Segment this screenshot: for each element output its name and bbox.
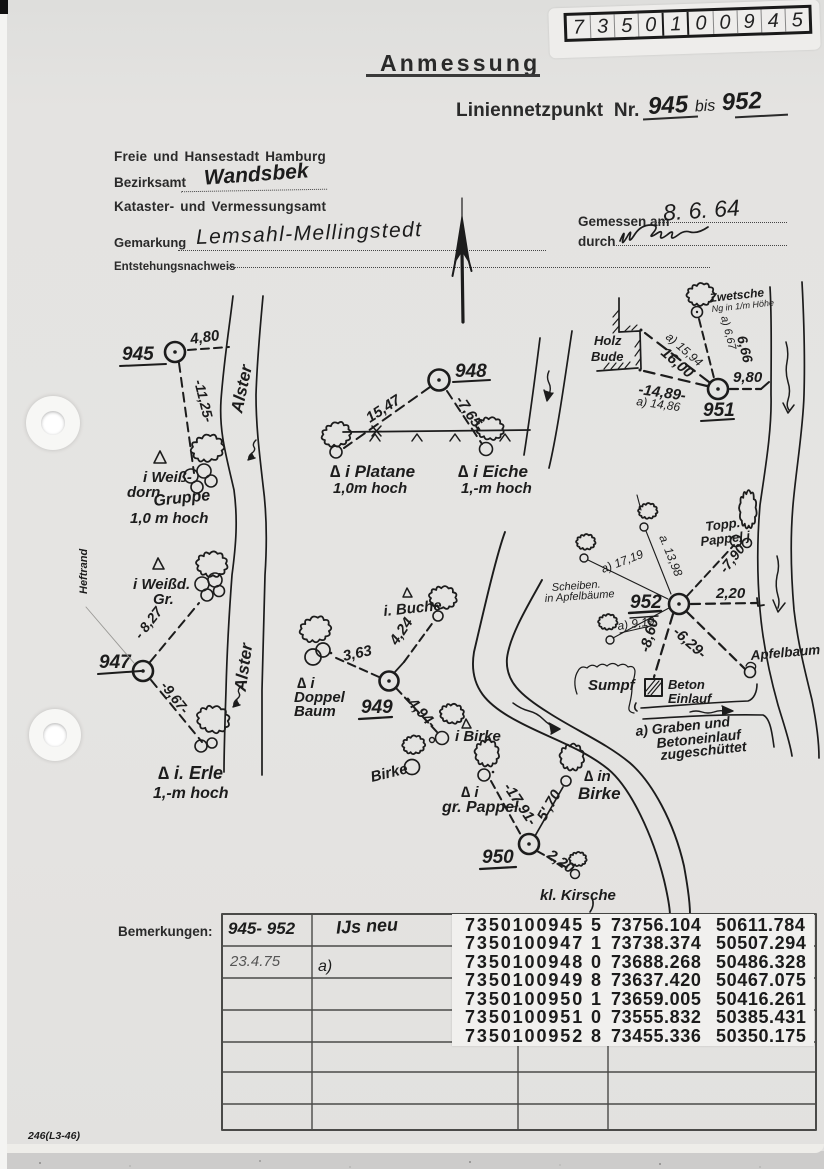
svg-text:950: 950 — [482, 847, 514, 868]
svg-text:Holz: Holz — [594, 333, 622, 348]
svg-text:2,20: 2,20 — [543, 846, 578, 878]
svg-text:-7,65-: -7,65- — [452, 393, 488, 435]
svg-text:a. 13,98: a. 13,98 — [656, 533, 685, 579]
svg-text:949: 949 — [361, 697, 393, 718]
svg-text:-9,67-: -9,67- — [158, 678, 193, 717]
svg-text:∆ in: ∆ in — [584, 768, 611, 785]
svg-text:1,0 m hoch: 1,0 m hoch — [130, 510, 208, 527]
svg-text:3,63: 3,63 — [341, 642, 374, 665]
svg-text:∆ i Eiche: ∆ i Eiche — [458, 462, 528, 481]
svg-text:4,80: 4,80 — [188, 327, 221, 348]
svg-text:2,20: 2,20 — [715, 585, 746, 602]
svg-text:1,-m hoch: 1,-m hoch — [461, 480, 532, 497]
svg-text:- 8,27: - 8,27 — [131, 603, 166, 642]
svg-text:Birke: Birke — [369, 760, 410, 786]
svg-text:945: 945 — [122, 344, 154, 365]
svg-text:Baum: Baum — [294, 703, 336, 720]
svg-text:951: 951 — [703, 400, 735, 421]
svg-text:Birke: Birke — [578, 784, 621, 803]
svg-text:6,66: 6,66 — [734, 334, 756, 365]
svg-text:Bude: Bude — [591, 349, 624, 364]
svg-text:Gruppe: Gruppe — [153, 487, 211, 510]
svg-text:∆ i. Erle: ∆ i. Erle — [158, 763, 223, 783]
svg-text:Alster: Alster — [227, 362, 256, 415]
svg-text:948: 948 — [455, 361, 487, 382]
svg-text:Alster: Alster — [231, 641, 257, 694]
svg-text:kl. Kirsche: kl. Kirsche — [540, 887, 616, 904]
svg-text:952: 952 — [630, 592, 662, 613]
svg-text:a) 6,67: a) 6,67 — [718, 315, 738, 352]
svg-text:Gr.: Gr. — [153, 591, 174, 608]
svg-text:Apfelbaum: Apfelbaum — [749, 642, 821, 663]
svg-text:9,80: 9,80 — [733, 369, 763, 386]
svg-text:Sumpf: Sumpf — [588, 677, 637, 694]
svg-text:-11,25-: -11,25- — [191, 378, 217, 424]
svg-text:a) 17,19: a) 17,19 — [599, 547, 645, 576]
svg-text:Beton: Beton — [668, 677, 705, 692]
svg-text:gr. Pappel: gr. Pappel — [441, 799, 519, 816]
svg-text:1,0m hoch: 1,0m hoch — [333, 480, 407, 497]
svg-text:-4,94-: -4,94- — [401, 691, 440, 731]
svg-text:1,-m hoch: 1,-m hoch — [153, 785, 229, 802]
svg-text:∆ i Platane: ∆ i Platane — [330, 462, 415, 481]
